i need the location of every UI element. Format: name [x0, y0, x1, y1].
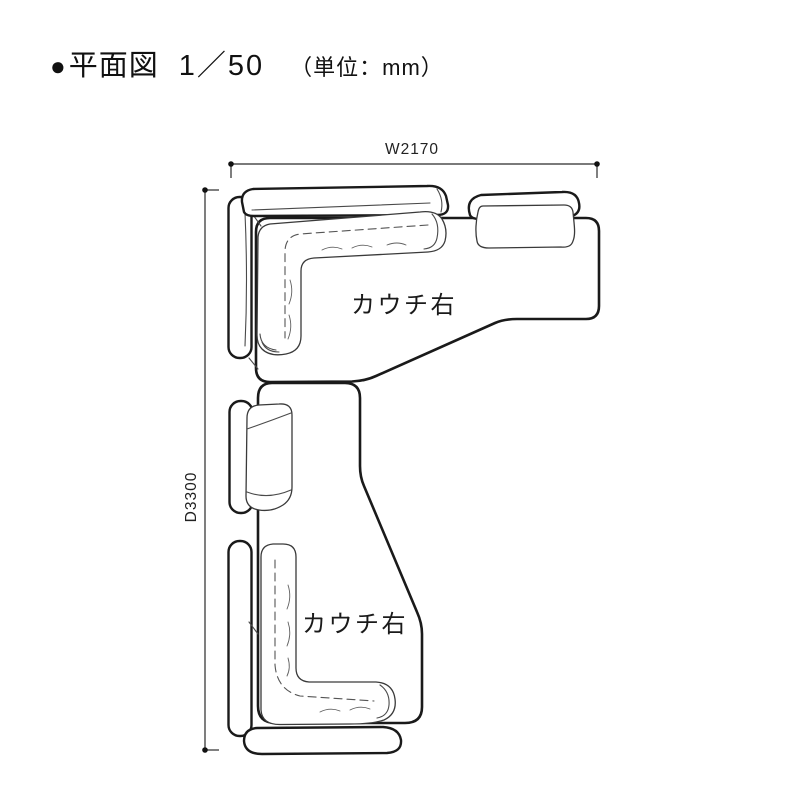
couch-bottom-label: カウチ右: [302, 611, 408, 638]
couch-top-headrest-cushion: [476, 205, 575, 248]
couch-top-back-panel: [242, 186, 448, 216]
couch-bottom-unit: カウチ右: [229, 383, 423, 754]
depth-dimension: D3300: [183, 187, 219, 753]
width-dimension: W2170: [228, 141, 600, 178]
couch-bottom-back-panel: [229, 541, 252, 736]
depth-dimension-label: D3300: [183, 472, 200, 523]
couch-top-armrest-panel: [229, 197, 252, 358]
floor-plan-drawing: W2170 D3300 カウチ右: [0, 0, 800, 800]
couch-top-label: カウチ右: [351, 292, 457, 319]
couch-bottom-headrest-cushion: [246, 404, 292, 511]
couch-top-unit: カウチ右: [229, 186, 600, 382]
couch-bottom-armrest-panel: [244, 727, 401, 754]
width-dimension-label: W2170: [385, 141, 439, 158]
